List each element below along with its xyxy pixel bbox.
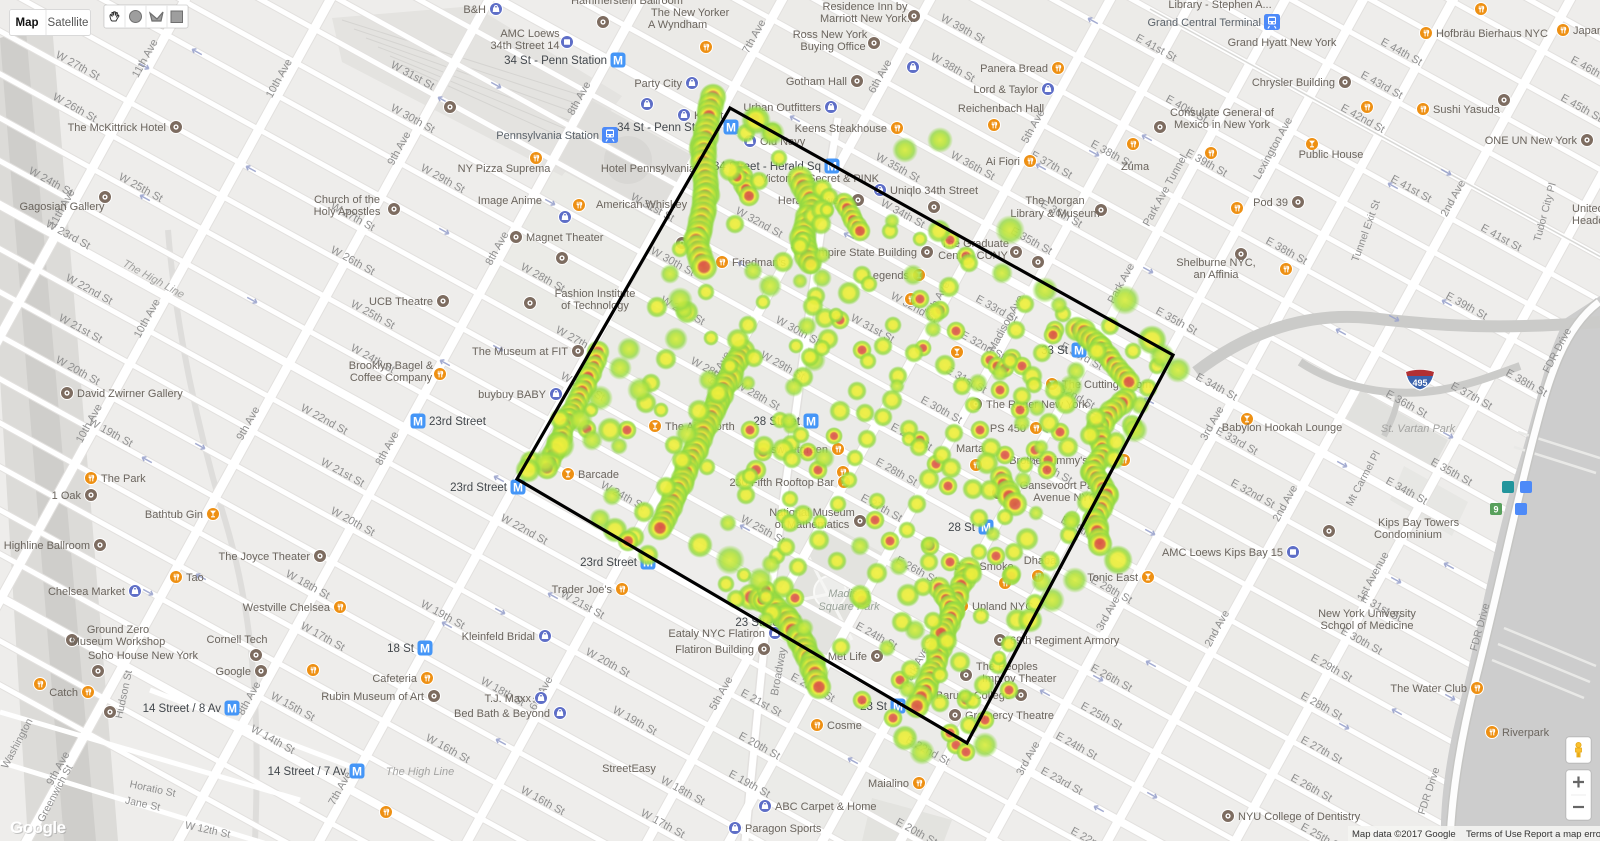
svg-text:Hofbräu Bierhaus NYC: Hofbräu Bierhaus NYC	[1436, 28, 1548, 40]
svg-text:ABC Carpet & Home: ABC Carpet & Home	[775, 801, 876, 813]
svg-text:23rd Street: 23rd Street	[429, 416, 487, 428]
svg-text:Riverpark: Riverpark	[1502, 727, 1550, 739]
svg-text:United: United	[1572, 203, 1600, 215]
svg-text:New York University: New York University	[1318, 608, 1416, 620]
svg-text:Condominium: Condominium	[1374, 529, 1442, 541]
svg-text:Rubin Museum of Art: Rubin Museum of Art	[321, 691, 424, 703]
svg-text:Kleinfeld Bridal: Kleinfeld Bridal	[462, 631, 535, 643]
svg-text:34 St - Penn Station: 34 St - Penn Station	[504, 55, 607, 67]
svg-text:Gagosian Gallery: Gagosian Gallery	[20, 201, 105, 213]
svg-text:Uniqlo 34th Street: Uniqlo 34th Street	[890, 185, 978, 197]
svg-text:B&H: B&H	[463, 4, 486, 16]
svg-text:The Morgan: The Morgan	[1025, 195, 1084, 207]
svg-text:Bed Bath & Beyond: Bed Bath & Beyond	[454, 708, 550, 720]
svg-text:Sushi Yasuda: Sushi Yasuda	[1433, 104, 1501, 116]
svg-text:Shelburne NYC,: Shelburne NYC,	[1176, 257, 1256, 269]
svg-text:Consulate General of: Consulate General of	[1170, 107, 1275, 119]
svg-text:Ground Zero: Ground Zero	[87, 624, 149, 636]
svg-text:buybuy BABY: buybuy BABY	[478, 389, 547, 401]
svg-text:Eataly NYC Flatiron: Eataly NYC Flatiron	[668, 628, 765, 640]
svg-text:Cafeteria: Cafeteria	[372, 673, 418, 685]
svg-text:Catch: Catch	[49, 687, 78, 699]
svg-text:Mexico in New York: Mexico in New York	[1174, 119, 1270, 131]
svg-text:Chrysler Building: Chrysler Building	[1252, 77, 1335, 89]
svg-text:Coffee Company: Coffee Company	[350, 372, 433, 384]
svg-text:1 Oak: 1 Oak	[52, 490, 82, 502]
svg-text:Google: Google	[216, 666, 251, 678]
svg-text:Public House: Public House	[1299, 149, 1364, 161]
svg-text:Zuma: Zuma	[1121, 161, 1150, 173]
svg-text:Report a map error: Report a map error	[1524, 829, 1600, 840]
svg-text:Library & Museum: Library & Museum	[1010, 208, 1099, 220]
svg-text:Image Anime: Image Anime	[478, 195, 542, 207]
svg-text:AMC Loews: AMC Loews	[500, 28, 560, 40]
svg-text:Westville Chelsea: Westville Chelsea	[243, 602, 331, 614]
svg-text:Grand Central Terminal: Grand Central Terminal	[1147, 17, 1261, 29]
svg-text:23rd Street: 23rd Street	[580, 557, 638, 569]
svg-text:Satellite: Satellite	[48, 17, 89, 29]
svg-text:34th Street 14: 34th Street 14	[490, 40, 559, 52]
svg-text:Gotham Hall: Gotham Hall	[786, 76, 847, 88]
svg-text:The Water Club: The Water Club	[1390, 683, 1467, 695]
svg-text:School of Medicine: School of Medicine	[1321, 620, 1414, 632]
svg-text:Panera Bread: Panera Bread	[980, 63, 1048, 75]
svg-text:The New Yorker: The New Yorker	[651, 7, 730, 19]
svg-text:ONE UN New York: ONE UN New York	[1485, 135, 1578, 147]
svg-text:The High Line: The High Line	[386, 766, 455, 778]
svg-text:The Park: The Park	[101, 473, 146, 485]
svg-text:T.J. Maxx: T.J. Maxx	[485, 693, 532, 705]
svg-text:Library - Stephen A...: Library - Stephen A...	[1168, 0, 1271, 11]
svg-text:69th Regiment Armory: 69th Regiment Armory	[1010, 635, 1120, 647]
svg-text:Ai Fiori: Ai Fiori	[986, 156, 1020, 168]
svg-text:Maialino: Maialino	[868, 778, 909, 790]
svg-text:Heado...: Heado...	[1572, 215, 1600, 227]
svg-text:18 St: 18 St	[387, 643, 415, 655]
svg-text:Flatiron Building: Flatiron Building	[675, 644, 754, 656]
svg-text:an Affinia: an Affinia	[1193, 269, 1239, 281]
svg-text:Buying Office: Buying Office	[800, 41, 865, 53]
svg-text:The Museum at FIT: The Museum at FIT	[472, 346, 568, 358]
svg-text:Cornell Tech: Cornell Tech	[207, 634, 268, 646]
svg-text:Bathtub Gin: Bathtub Gin	[145, 509, 203, 521]
svg-text:Residence Inn by: Residence Inn by	[823, 1, 908, 13]
svg-text:St. Vartan Park: St. Vartan Park	[1381, 423, 1456, 435]
svg-text:Ross New York: Ross New York	[793, 29, 868, 41]
svg-text:Museum Workshop: Museum Workshop	[71, 636, 166, 648]
svg-text:NY Pizza Suprema: NY Pizza Suprema	[458, 163, 552, 175]
svg-text:The McKittrick Hotel: The McKittrick Hotel	[68, 122, 166, 134]
svg-text:Hammerstein Ballroom: Hammerstein Ballroom	[571, 0, 683, 7]
svg-text:The Joyce Theater: The Joyce Theater	[218, 551, 310, 563]
svg-text:Babylon Hookah Lounge: Babylon Hookah Lounge	[1222, 422, 1342, 434]
svg-text:Lord & Taylor: Lord & Taylor	[973, 84, 1038, 96]
svg-text:495: 495	[1412, 378, 1427, 388]
svg-text:Map data ©2017 Google: Map data ©2017 Google	[1352, 829, 1456, 840]
svg-text:Trader Joe's: Trader Joe's	[552, 584, 613, 596]
svg-text:Japan S: Japan S	[1573, 25, 1600, 37]
svg-text:Soho House New York: Soho House New York	[88, 650, 199, 662]
svg-text:David Zwirner Gallery: David Zwirner Gallery	[77, 388, 183, 400]
svg-text:NYU College of Dentistry: NYU College of Dentistry	[1238, 811, 1361, 823]
svg-text:14 Street / 8 Av: 14 Street / 8 Av	[143, 703, 222, 715]
svg-text:Chelsea Market: Chelsea Market	[48, 586, 125, 598]
svg-text:AMC Loews Kips Bay 15: AMC Loews Kips Bay 15	[1162, 547, 1283, 559]
svg-text:Pod 39: Pod 39	[1253, 197, 1288, 209]
svg-text:Google: Google	[10, 818, 66, 837]
svg-text:A Wyndham: A Wyndham	[648, 19, 707, 31]
svg-text:14 Street / 7 Av: 14 Street / 7 Av	[268, 766, 347, 778]
svg-text:UCB Theatre: UCB Theatre	[369, 296, 433, 308]
svg-text:Brooklyn Bagel &: Brooklyn Bagel &	[349, 360, 434, 372]
svg-text:Reichenbach Hall: Reichenbach Hall	[958, 103, 1044, 115]
svg-text:Marriott New York...: Marriott New York...	[820, 13, 916, 25]
svg-text:Highline Ballroom: Highline Ballroom	[4, 540, 90, 552]
svg-text:Kips Bay Towers: Kips Bay Towers	[1378, 517, 1460, 529]
svg-text:Keens Steakhouse: Keens Steakhouse	[795, 123, 887, 135]
svg-text:Paragon Sports: Paragon Sports	[745, 823, 822, 835]
svg-text:Barcade: Barcade	[578, 469, 619, 481]
svg-text:Grand Hyatt New York: Grand Hyatt New York	[1228, 37, 1337, 49]
svg-text:Party City: Party City	[634, 78, 682, 90]
svg-text:Magnet Theater: Magnet Theater	[526, 232, 604, 244]
svg-text:23rd Street: 23rd Street	[450, 482, 508, 494]
svg-text:Pennsylvania Station: Pennsylvania Station	[496, 130, 599, 142]
svg-text:Map: Map	[16, 17, 39, 29]
svg-text:Tao: Tao	[186, 572, 204, 584]
svg-text:Church of the: Church of the	[314, 194, 380, 206]
svg-text:Terms of Use: Terms of Use	[1466, 829, 1522, 840]
svg-text:StreetEasy: StreetEasy	[602, 763, 656, 775]
svg-text:Holy Apostles: Holy Apostles	[314, 206, 381, 218]
svg-text:9: 9	[1493, 505, 1498, 515]
svg-text:Cosme: Cosme	[827, 720, 862, 732]
svg-text:Hotel Pennsylvania: Hotel Pennsylvania	[601, 163, 696, 175]
